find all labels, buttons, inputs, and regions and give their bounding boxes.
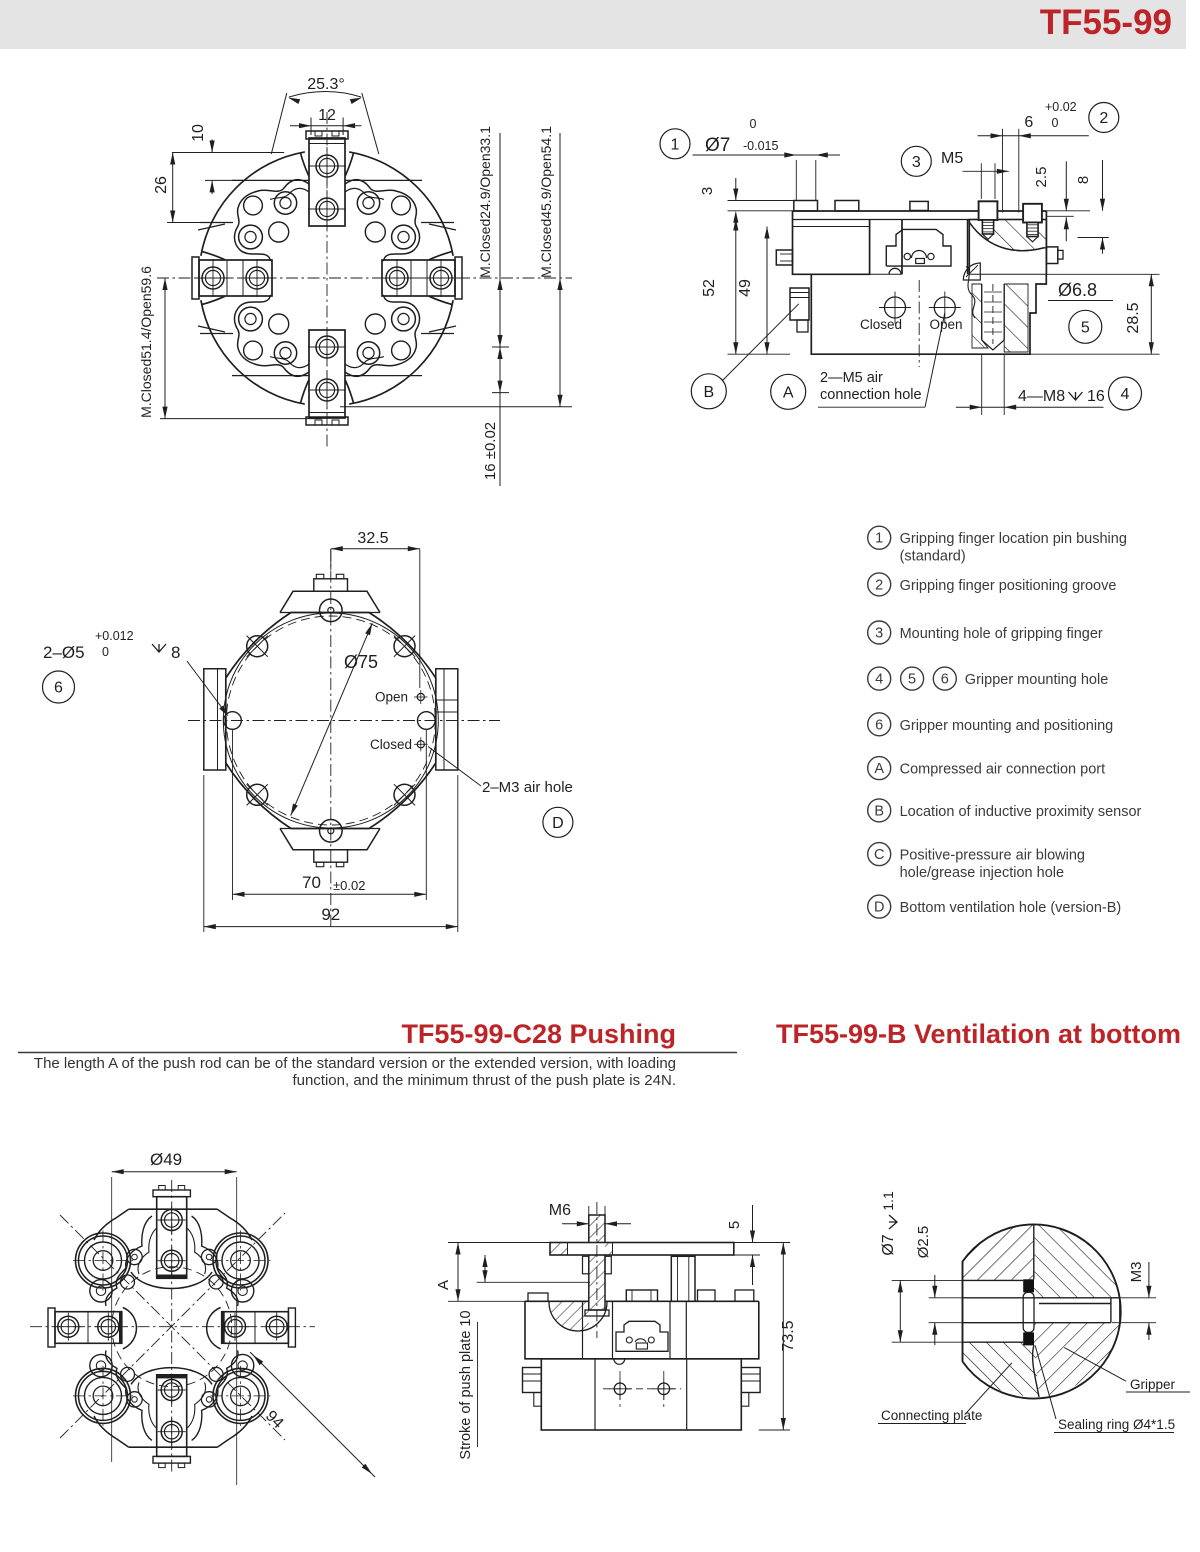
- svg-text:±0.02: ±0.02: [333, 878, 365, 893]
- svg-text:Gripping finger location pin b: Gripping finger location pin bushing: [900, 531, 1127, 547]
- svg-text:16: 16: [1087, 388, 1105, 405]
- svg-text:Gripping finger positioning gr: Gripping finger positioning groove: [900, 578, 1117, 594]
- svg-text:4: 4: [875, 672, 883, 688]
- svg-text:2–Ø5: 2–Ø5: [43, 643, 85, 662]
- svg-text:Location of inductive proximit: Location of inductive proximity sensor: [900, 804, 1142, 820]
- svg-text:+0.012: +0.012: [95, 629, 134, 643]
- svg-text:TF55-99-B Ventilation at botto: TF55-99-B Ventilation at bottom: [776, 1019, 1181, 1049]
- svg-text:Open: Open: [929, 317, 962, 332]
- svg-text:70: 70: [302, 873, 321, 892]
- svg-text:B: B: [874, 803, 884, 819]
- svg-text:1: 1: [671, 136, 680, 153]
- svg-text:D: D: [552, 815, 564, 832]
- svg-text:6: 6: [875, 717, 883, 733]
- svg-text:M3: M3: [1128, 1262, 1145, 1283]
- svg-text:function, and the minimum thru: function, and the minimum thrust of the …: [292, 1072, 676, 1089]
- svg-text:Gripper mounting hole: Gripper mounting hole: [965, 672, 1108, 688]
- svg-text:8: 8: [1075, 176, 1092, 184]
- svg-text:4: 4: [1121, 386, 1130, 403]
- svg-text:M6: M6: [549, 1202, 571, 1219]
- svg-text:12: 12: [318, 107, 336, 124]
- svg-text:32.5: 32.5: [357, 530, 388, 547]
- svg-text:10: 10: [190, 124, 207, 142]
- svg-text:Ø75: Ø75: [344, 652, 378, 672]
- svg-text:A: A: [783, 384, 794, 401]
- svg-text:2—M5 air: 2—M5 air: [820, 370, 883, 386]
- svg-text:A: A: [874, 761, 884, 777]
- svg-text:Closed: Closed: [370, 737, 412, 752]
- svg-text:C: C: [874, 847, 884, 863]
- svg-text:0: 0: [1052, 116, 1059, 130]
- svg-text:8: 8: [171, 643, 180, 662]
- svg-text:Ø6.8: Ø6.8: [1058, 280, 1097, 300]
- svg-text:Ø49: Ø49: [150, 1150, 182, 1169]
- svg-text:Ø2.5: Ø2.5: [915, 1226, 932, 1259]
- svg-text:2: 2: [1099, 110, 1108, 127]
- svg-text:+0.02: +0.02: [1045, 100, 1077, 114]
- svg-text:Ø7: Ø7: [880, 1234, 897, 1255]
- svg-text:26: 26: [153, 176, 170, 194]
- svg-text:5: 5: [908, 672, 916, 688]
- svg-text:M5: M5: [941, 150, 963, 167]
- svg-text:Gripper: Gripper: [1130, 1377, 1176, 1392]
- svg-text:Positive-pressure air blowing: Positive-pressure air blowing: [900, 848, 1085, 864]
- svg-text:6: 6: [941, 672, 949, 688]
- svg-text:6: 6: [1024, 114, 1033, 131]
- svg-text:5: 5: [1081, 319, 1090, 336]
- svg-text:Bottom ventilation hole (versi: Bottom ventilation hole (version-B): [900, 900, 1122, 916]
- svg-text:The length A of the push rod c: The length A of the push rod can be of t…: [34, 1055, 676, 1072]
- svg-text:Closed: Closed: [860, 317, 902, 332]
- svg-text:Connecting plate: Connecting plate: [881, 1408, 982, 1423]
- svg-text:TF55-99: TF55-99: [1040, 3, 1172, 42]
- svg-text:hole/grease injection hole: hole/grease injection hole: [900, 865, 1064, 881]
- svg-text:6: 6: [54, 680, 63, 697]
- svg-text:2.5: 2.5: [1033, 167, 1050, 188]
- svg-text:Stroke of push plate 10: Stroke of push plate 10: [458, 1310, 474, 1459]
- svg-text:16 ±0.02: 16 ±0.02: [482, 422, 499, 480]
- svg-text:3: 3: [912, 154, 921, 171]
- svg-text:-0.015: -0.015: [743, 139, 778, 153]
- svg-text:Ø7: Ø7: [705, 135, 730, 156]
- svg-text:73.5: 73.5: [780, 1320, 797, 1351]
- svg-text:Mounting hole of gripping fing: Mounting hole of gripping finger: [900, 626, 1103, 642]
- svg-text:4—M8: 4—M8: [1018, 388, 1065, 405]
- svg-text:0: 0: [750, 117, 757, 131]
- svg-text:M.Closed51.4/Open59.6: M.Closed51.4/Open59.6: [138, 266, 154, 418]
- svg-text:25.3°: 25.3°: [307, 76, 345, 93]
- svg-text:1.1: 1.1: [880, 1191, 896, 1211]
- svg-text:M.Closed24.9/Open33.1: M.Closed24.9/Open33.1: [477, 126, 493, 278]
- svg-text:2: 2: [875, 577, 883, 593]
- svg-text:A: A: [435, 1280, 452, 1290]
- svg-text:3: 3: [875, 626, 883, 642]
- svg-text:Open: Open: [375, 690, 408, 705]
- svg-text:1: 1: [875, 531, 883, 547]
- svg-text:B: B: [703, 384, 714, 401]
- svg-text:Gripper mounting and positioni: Gripper mounting and positioning: [900, 718, 1114, 734]
- svg-text:D: D: [874, 900, 884, 916]
- svg-text:52: 52: [701, 279, 718, 297]
- svg-text:TF55-99-C28 Pushing: TF55-99-C28 Pushing: [401, 1019, 676, 1049]
- svg-text:2–M3 air hole: 2–M3 air hole: [482, 779, 573, 796]
- svg-text:0: 0: [102, 645, 109, 659]
- svg-text:M.Closed45.9/Open54.1: M.Closed45.9/Open54.1: [538, 126, 554, 278]
- svg-text:Compressed air connection port: Compressed air connection port: [900, 762, 1106, 778]
- svg-text:5: 5: [726, 1221, 743, 1229]
- svg-text:connection hole: connection hole: [820, 387, 922, 403]
- svg-text:3: 3: [699, 187, 716, 195]
- svg-text:28.5: 28.5: [1125, 302, 1142, 333]
- svg-text:49: 49: [737, 279, 754, 297]
- svg-text:(standard): (standard): [900, 549, 966, 565]
- svg-text:92: 92: [321, 905, 340, 924]
- svg-text:Sealing ring Ø4*1.5: Sealing ring Ø4*1.5: [1058, 1417, 1175, 1432]
